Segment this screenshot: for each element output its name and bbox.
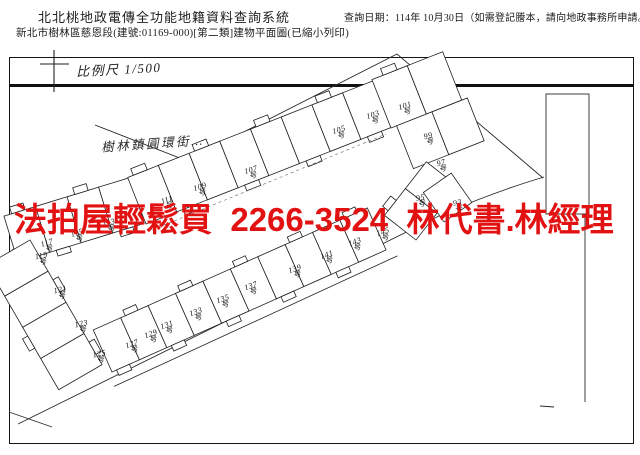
cadastral-print-page: 北北桃地政電傳全功能地籍資料查詢系統 新北市樹林區慈恩段(建號:01169-00… xyxy=(0,0,640,455)
north-compass-icon xyxy=(40,50,69,92)
unit-number-label: 123号 xyxy=(74,319,90,335)
watermark-text: 法拍屋輕鬆買 2266-3524 林代書.林經理 xyxy=(14,200,614,240)
unit-number-label: 125号 xyxy=(92,349,108,365)
unit-number-label: 119号 xyxy=(34,251,50,267)
unit-number-label: 121号 xyxy=(53,285,69,301)
